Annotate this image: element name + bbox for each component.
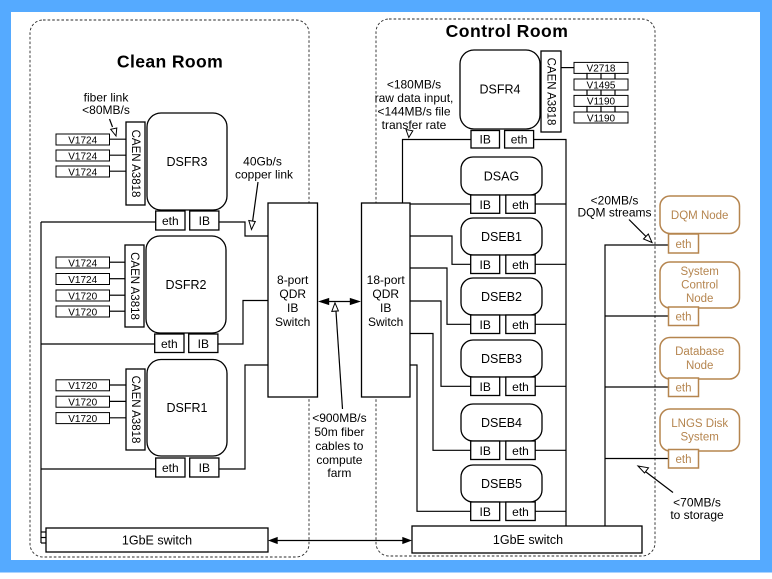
svg-text:eth: eth — [512, 258, 529, 272]
svg-text:V1724: V1724 — [68, 135, 97, 146]
svg-text:LNGS Disk: LNGS Disk — [671, 418, 728, 430]
svg-text:V1724: V1724 — [68, 167, 97, 178]
svg-text:eth: eth — [676, 239, 692, 251]
svg-text:CAEN A3818: CAEN A3818 — [128, 252, 140, 320]
svg-text:transfer rate: transfer rate — [382, 118, 447, 132]
svg-text:eth: eth — [512, 380, 529, 394]
svg-text:DSEB3: DSEB3 — [481, 352, 522, 366]
svg-text:IB: IB — [199, 214, 210, 228]
svg-text:V1720: V1720 — [68, 381, 97, 392]
svg-text:DSFR2: DSFR2 — [166, 278, 207, 292]
svg-text:DSEB1: DSEB1 — [481, 230, 522, 244]
svg-text:DSAG: DSAG — [484, 170, 519, 184]
svg-text:DSEB5: DSEB5 — [481, 477, 522, 491]
svg-text:DSFR4: DSFR4 — [480, 83, 521, 97]
svg-text:IB: IB — [199, 461, 210, 475]
svg-text:Node: Node — [686, 293, 714, 305]
svg-text:1GbE switch: 1GbE switch — [493, 533, 563, 547]
svg-text:eth: eth — [161, 337, 178, 351]
svg-text:IB: IB — [480, 133, 491, 147]
svg-text:farm: farm — [327, 466, 351, 480]
svg-text:IB: IB — [480, 258, 491, 272]
svg-text:IB: IB — [287, 301, 298, 315]
svg-text:Node: Node — [686, 360, 714, 372]
svg-text:18-port: 18-port — [367, 273, 406, 287]
svg-text:System: System — [681, 266, 719, 278]
svg-text:Switch: Switch — [368, 315, 403, 329]
svg-text:<900MB/s: <900MB/s — [312, 411, 366, 425]
svg-text:CAEN A3818: CAEN A3818 — [545, 58, 557, 126]
svg-text:IB: IB — [480, 318, 491, 332]
svg-text:Control Room: Control Room — [446, 21, 569, 41]
svg-text:DSFR1: DSFR1 — [167, 401, 208, 415]
svg-text:to storage: to storage — [670, 508, 724, 522]
svg-text:IB: IB — [198, 337, 209, 351]
svg-text:DQM Node: DQM Node — [671, 210, 729, 222]
svg-text:CAEN A3818: CAEN A3818 — [129, 376, 141, 444]
svg-text:eth: eth — [512, 198, 529, 212]
svg-text:V1720: V1720 — [68, 398, 97, 409]
svg-text:DSFR3: DSFR3 — [167, 155, 208, 169]
svg-text:Database: Database — [675, 346, 724, 358]
svg-text:DQM streams: DQM streams — [577, 206, 651, 220]
svg-text:IB: IB — [480, 505, 491, 519]
svg-text:<80MB/s: <80MB/s — [82, 103, 130, 117]
svg-text:QDR: QDR — [279, 287, 306, 301]
svg-text:System: System — [681, 432, 719, 444]
svg-text:Control: Control — [681, 279, 718, 291]
svg-text:V1720: V1720 — [68, 307, 97, 318]
svg-text:IB: IB — [480, 380, 491, 394]
svg-text:<180MB/s: <180MB/s — [387, 78, 441, 92]
svg-text:raw data input,: raw data input, — [375, 91, 454, 105]
svg-text:Clean Room: Clean Room — [117, 52, 223, 72]
svg-text:V1724: V1724 — [68, 258, 97, 269]
svg-text:eth: eth — [512, 505, 529, 519]
svg-text:QDR: QDR — [372, 287, 399, 301]
svg-text:V1720: V1720 — [68, 291, 97, 302]
svg-text:IB: IB — [480, 444, 491, 458]
svg-text:DSEB4: DSEB4 — [481, 416, 522, 430]
svg-text:50m fiber: 50m fiber — [314, 425, 364, 439]
svg-text:<144MB/s file: <144MB/s file — [377, 105, 450, 119]
svg-text:DSEB2: DSEB2 — [481, 290, 522, 304]
svg-text:compute: compute — [316, 453, 362, 467]
svg-text:CAEN A3818: CAEN A3818 — [129, 130, 141, 198]
svg-text:eth: eth — [512, 318, 529, 332]
svg-text:eth: eth — [511, 133, 528, 147]
svg-text:1GbE switch: 1GbE switch — [122, 534, 192, 548]
svg-text:eth: eth — [162, 461, 179, 475]
svg-text:copper link: copper link — [235, 168, 294, 182]
svg-text:eth: eth — [676, 454, 692, 466]
svg-text:V1190: V1190 — [587, 113, 616, 124]
svg-text:eth: eth — [676, 383, 692, 395]
svg-text:eth: eth — [512, 444, 529, 458]
svg-text:40Gb/s: 40Gb/s — [243, 155, 282, 169]
svg-text:Switch: Switch — [275, 315, 310, 329]
svg-text:8-port: 8-port — [277, 273, 309, 287]
svg-text:eth: eth — [162, 214, 179, 228]
svg-text:V1724: V1724 — [68, 151, 97, 162]
svg-text:eth: eth — [676, 312, 692, 324]
svg-text:cables to: cables to — [315, 439, 363, 453]
svg-text:IB: IB — [480, 198, 491, 212]
svg-text:IB: IB — [380, 301, 391, 315]
svg-text:V1724: V1724 — [68, 275, 97, 286]
svg-text:V1720: V1720 — [68, 414, 97, 425]
